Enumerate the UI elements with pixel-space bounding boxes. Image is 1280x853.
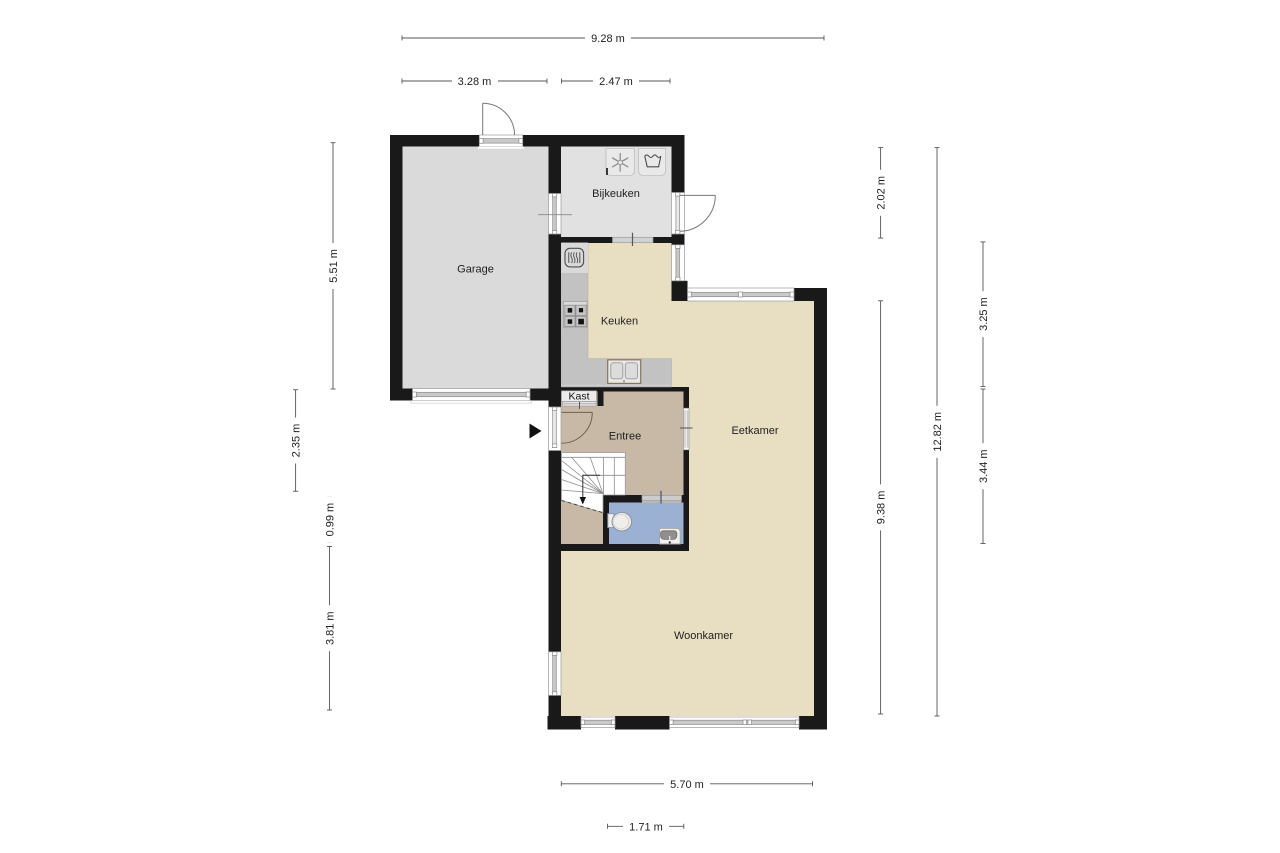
svg-text:Woonkamer: Woonkamer — [674, 630, 733, 642]
svg-text:3.25 m: 3.25 m — [978, 297, 990, 331]
svg-text:Keuken: Keuken — [601, 316, 638, 328]
svg-text:Entree: Entree — [609, 431, 641, 443]
svg-text:2.02 m: 2.02 m — [876, 176, 888, 210]
svg-text:5.70 m: 5.70 m — [670, 779, 704, 791]
svg-text:2.35 m: 2.35 m — [291, 424, 303, 458]
svg-text:Eetkamer: Eetkamer — [731, 425, 778, 437]
svg-text:5.51 m: 5.51 m — [328, 249, 340, 283]
svg-text:2.47 m: 2.47 m — [599, 76, 633, 88]
svg-text:Garage: Garage — [457, 264, 494, 276]
svg-text:Bijkeuken: Bijkeuken — [592, 188, 640, 200]
svg-text:12.82 m: 12.82 m — [932, 412, 944, 452]
svg-text:9.28 m: 9.28 m — [591, 33, 625, 45]
svg-text:3.28 m: 3.28 m — [458, 76, 492, 88]
svg-text:Kast: Kast — [568, 391, 589, 403]
svg-text:3.44 m: 3.44 m — [978, 449, 990, 483]
svg-text:1.71 m: 1.71 m — [629, 821, 663, 833]
svg-text:9.38 m: 9.38 m — [876, 491, 888, 525]
svg-text:3.81 m: 3.81 m — [325, 611, 337, 645]
svg-text:0.99 m: 0.99 m — [325, 503, 337, 537]
